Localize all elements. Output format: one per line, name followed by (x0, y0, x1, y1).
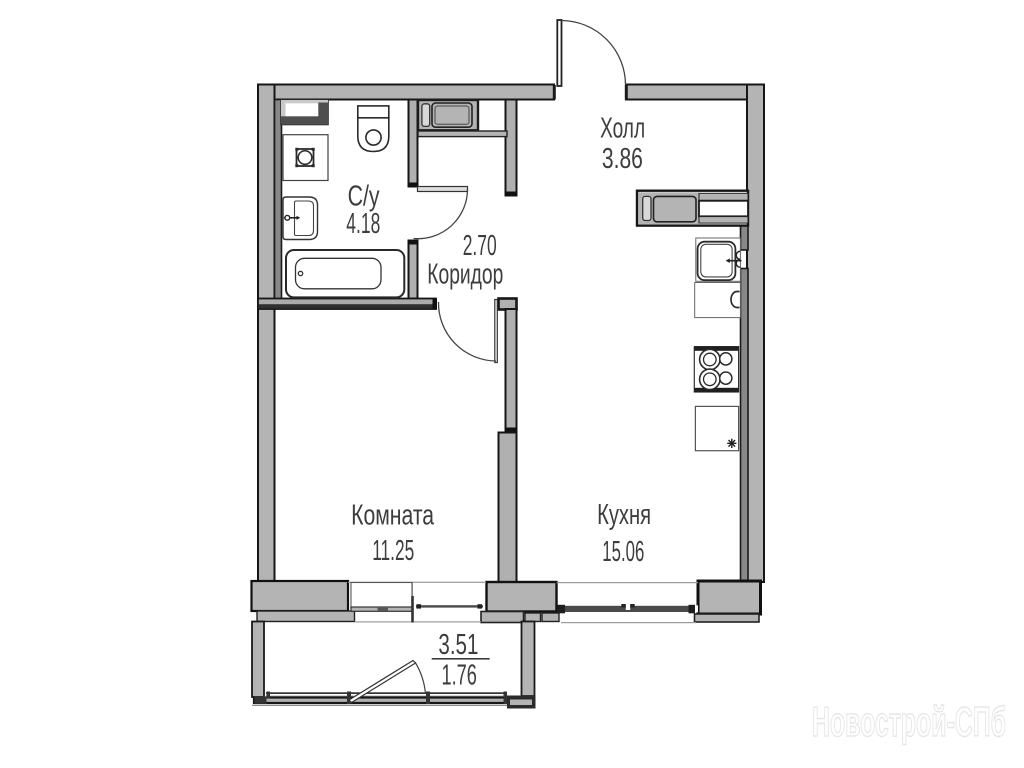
svg-text:3.51: 3.51 (438, 629, 478, 661)
svg-text:4.18: 4.18 (346, 208, 380, 240)
svg-text:1.76: 1.76 (441, 660, 477, 692)
svg-text:Новострой-СПб: Новострой-СПб (812, 698, 1006, 745)
svg-text:Кухня: Кухня (597, 499, 651, 531)
svg-text:2.70: 2.70 (463, 230, 497, 262)
svg-text:15.06: 15.06 (602, 536, 644, 568)
svg-text:Коридор: Коридор (427, 259, 503, 291)
svg-text:11.25: 11.25 (372, 535, 414, 567)
svg-text:Комната: Комната (351, 499, 435, 531)
svg-text:Холл: Холл (600, 112, 645, 144)
svg-text:3.86: 3.86 (602, 143, 643, 175)
